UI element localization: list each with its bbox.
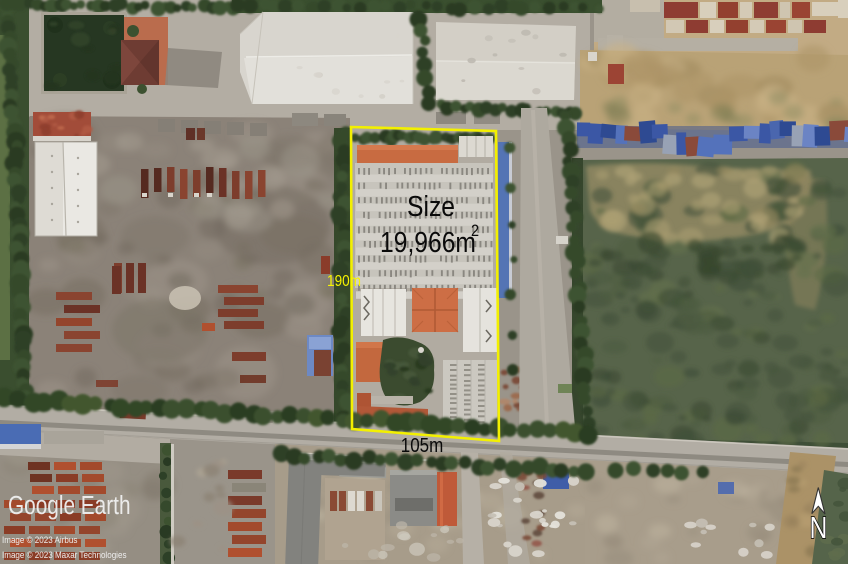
svg-text:Size: Size: [407, 190, 455, 222]
svg-text:N: N: [810, 510, 828, 544]
svg-text:19,966m: 19,966m: [380, 226, 476, 258]
svg-text:Google Earth: Google Earth: [8, 491, 131, 520]
svg-text:Image © 2023 Maxar Technologie: Image © 2023 Maxar Technologies: [2, 549, 127, 560]
svg-text:Image © 2023 Airbus: Image © 2023 Airbus: [2, 534, 78, 545]
svg-text:2: 2: [471, 222, 479, 240]
svg-text:190m: 190m: [327, 273, 361, 290]
svg-text:105m: 105m: [401, 434, 444, 457]
